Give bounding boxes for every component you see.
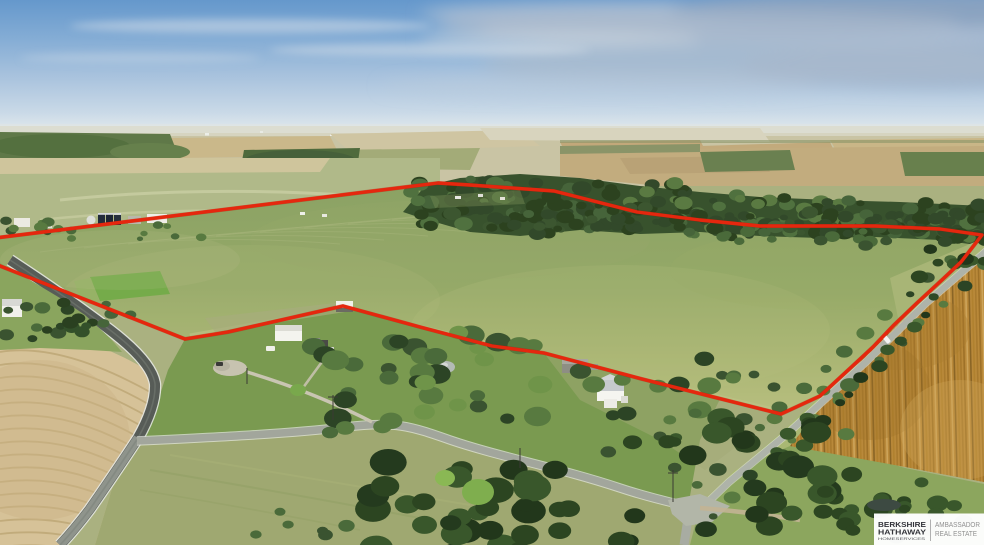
svg-text:AMBASSADOR: AMBASSADOR bbox=[935, 520, 980, 529]
svg-text:HATHAWAY: HATHAWAY bbox=[878, 527, 926, 536]
svg-text:HOMESERVICES: HOMESERVICES bbox=[878, 537, 925, 541]
svg-text:REAL ESTATE: REAL ESTATE bbox=[935, 529, 977, 538]
